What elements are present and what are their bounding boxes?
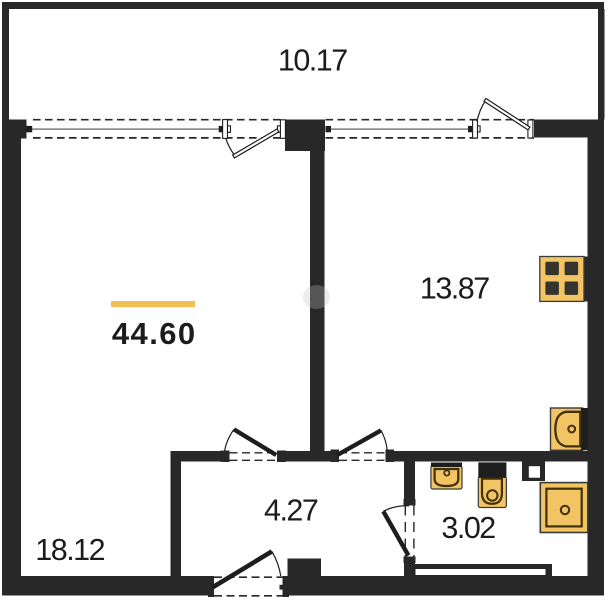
svg-text:10.17: 10.17 — [278, 43, 347, 77]
svg-text:13.87: 13.87 — [420, 271, 489, 305]
svg-text:44.60: 44.60 — [112, 316, 197, 351]
svg-text:3.02: 3.02 — [441, 511, 495, 545]
svg-text:4.27: 4.27 — [264, 494, 318, 528]
svg-text:18.12: 18.12 — [35, 533, 104, 567]
